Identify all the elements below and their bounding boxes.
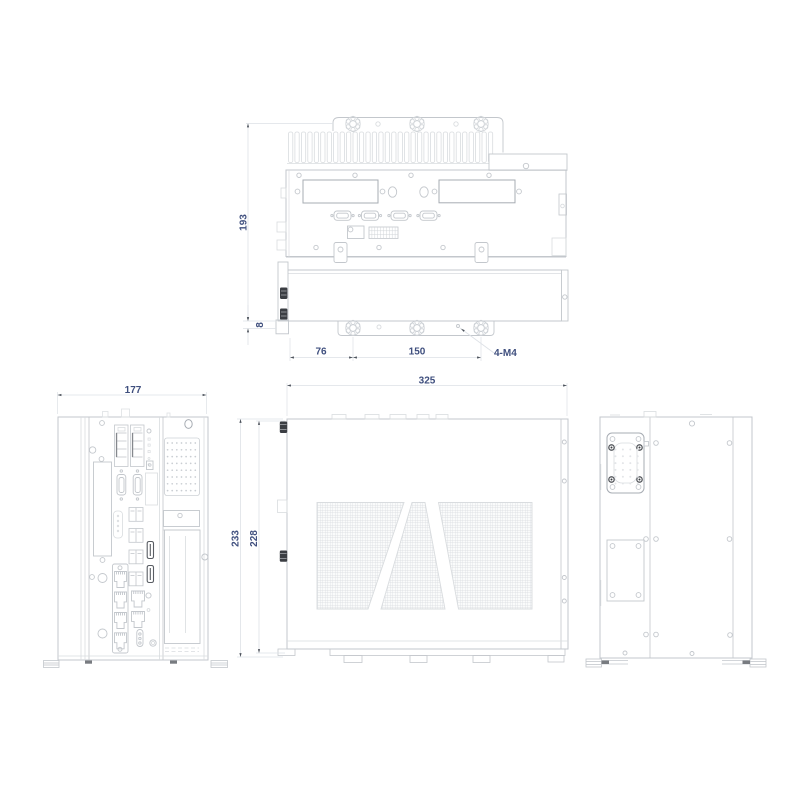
svg-text:228: 228	[249, 530, 260, 547]
svg-text:177: 177	[125, 385, 142, 396]
svg-text:4-M4: 4-M4	[494, 348, 517, 359]
svg-text:325: 325	[419, 376, 436, 387]
svg-text:8: 8	[255, 322, 266, 328]
svg-text:76: 76	[315, 347, 327, 358]
svg-text:233: 233	[231, 530, 242, 547]
svg-text:193: 193	[239, 214, 250, 231]
svg-text:150: 150	[409, 347, 426, 358]
